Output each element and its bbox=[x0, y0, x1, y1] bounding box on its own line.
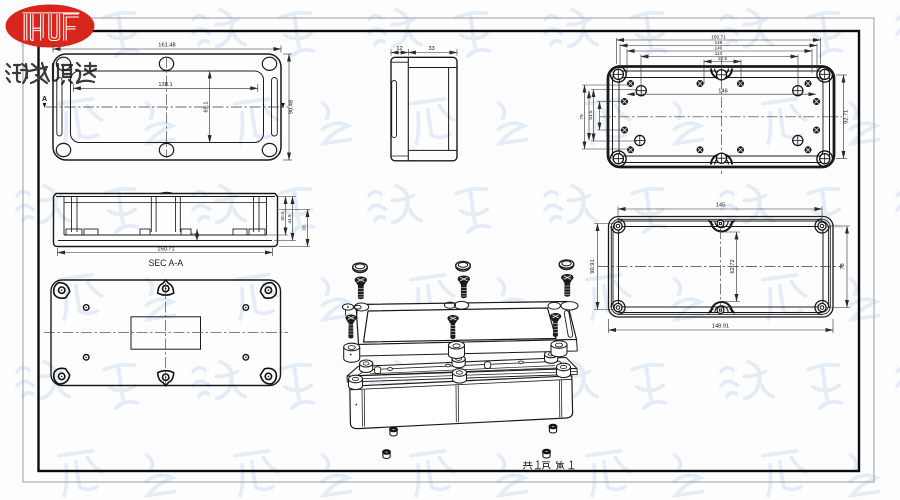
svg-text:62.72: 62.72 bbox=[730, 259, 736, 273]
svg-text:161.48: 161.48 bbox=[158, 43, 175, 49]
svg-text:138.1: 138.1 bbox=[158, 82, 172, 88]
svg-text:148.91: 148.91 bbox=[712, 324, 729, 330]
svg-text:150.71: 150.71 bbox=[157, 247, 174, 253]
svg-text:78: 78 bbox=[840, 263, 846, 269]
svg-text:69.1: 69.1 bbox=[204, 101, 210, 112]
svg-text:145: 145 bbox=[716, 203, 726, 209]
svg-text:SEC A-A: SEC A-A bbox=[148, 258, 183, 268]
svg-text:51.5: 51.5 bbox=[588, 110, 593, 120]
svg-text:44.5: 44.5 bbox=[287, 214, 292, 224]
svg-text:79: 79 bbox=[579, 114, 584, 120]
svg-text:140: 140 bbox=[715, 46, 723, 51]
svg-text:146: 146 bbox=[715, 40, 723, 45]
svg-text:33: 33 bbox=[428, 46, 434, 52]
svg-text:150.71: 150.71 bbox=[711, 35, 726, 40]
svg-text:90.48: 90.48 bbox=[289, 100, 295, 114]
svg-text:146: 146 bbox=[718, 88, 728, 94]
svg-text:92.71: 92.71 bbox=[843, 110, 849, 124]
svg-text:30.5: 30.5 bbox=[280, 211, 285, 221]
svg-text:28.5: 28.5 bbox=[718, 56, 728, 61]
svg-text:A: A bbox=[42, 96, 47, 103]
svg-text:33: 33 bbox=[302, 225, 307, 231]
svg-text:12: 12 bbox=[396, 46, 402, 52]
svg-text:90.91: 90.91 bbox=[590, 259, 596, 273]
svg-text:6: 6 bbox=[191, 232, 196, 235]
